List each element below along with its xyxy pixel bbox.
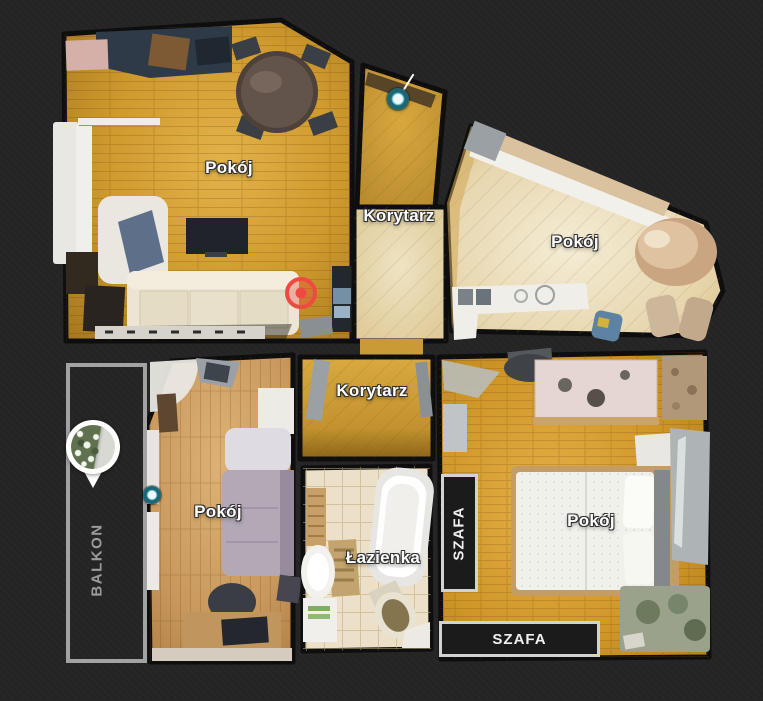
plant — [668, 594, 688, 614]
wardrobe-left-door — [76, 126, 92, 260]
tv-stand — [205, 252, 227, 257]
shelf-bottom — [152, 648, 292, 661]
bathroom — [301, 465, 436, 651]
sink-basin — [307, 553, 329, 591]
wall-ledge — [78, 118, 160, 125]
wardrobe-left — [53, 122, 79, 264]
plant — [636, 600, 660, 624]
round-table-top — [638, 221, 698, 269]
corridor-lower — [300, 357, 433, 459]
balcony-window — [146, 512, 159, 590]
plant — [684, 619, 706, 641]
balcony-outline — [66, 363, 147, 663]
pink-cushion — [65, 39, 108, 70]
sofa-cushion — [240, 291, 288, 328]
washer-detail — [308, 614, 330, 619]
sofa-cushion — [140, 291, 188, 328]
dining-table-top — [241, 56, 313, 128]
headboard — [654, 470, 670, 592]
chair-top — [148, 34, 190, 71]
pin-photo-greenery — [71, 425, 115, 469]
pillow — [623, 475, 656, 528]
table-highlight — [250, 71, 282, 93]
artwork-mark — [620, 370, 630, 380]
sink-basin — [476, 289, 491, 305]
round-table-highlight — [644, 230, 670, 248]
washer-detail — [308, 606, 330, 611]
tapestry — [662, 356, 707, 420]
tapestry-dot — [671, 368, 679, 376]
artwork-mark — [587, 389, 605, 407]
item-dark — [276, 575, 301, 604]
small-room — [146, 355, 302, 662]
kitchen-room — [447, 121, 723, 343]
radiator-bedroom — [443, 404, 467, 452]
clutter-dark — [195, 36, 232, 65]
shelf-item-blue — [333, 288, 351, 304]
wardrobe-box-bottom: SZAFA — [439, 621, 600, 657]
cabinet-wood — [157, 393, 179, 432]
frame-strip — [533, 417, 659, 425]
balcony-photo-pin[interactable] — [64, 418, 122, 504]
artwork-mark — [558, 378, 572, 392]
shelf-white — [258, 388, 294, 434]
shelf-item-lightblue — [334, 306, 350, 318]
wardrobe-label-side: SZAFA — [451, 506, 468, 560]
wardrobe-label-bottom: SZAFA — [492, 631, 546, 648]
washer — [303, 598, 337, 642]
wardrobe-box-side: SZAFA — [441, 474, 478, 592]
cabinet-dark-2 — [83, 285, 125, 333]
floorplan-viewer: BALKON SZAFA SZAFA Pokój Korytarz Pokój … — [0, 0, 763, 701]
sink-basin — [458, 289, 473, 305]
tapestry-dot — [687, 385, 697, 395]
corridor-junction-texture — [354, 207, 446, 341]
daybed-side — [280, 470, 294, 576]
monitor — [221, 616, 269, 645]
tv — [186, 218, 248, 254]
panorama-sweep-marker-corridor[interactable] — [387, 88, 409, 110]
tag-marker-living-room[interactable] — [285, 277, 317, 309]
balcony-label: BALKON — [89, 523, 106, 596]
sofa-back — [127, 271, 299, 289]
pillow — [623, 531, 656, 584]
sofa-cushion — [190, 291, 238, 328]
pillow — [225, 428, 291, 472]
panorama-sweep-marker-small-room[interactable] — [143, 486, 161, 504]
bedroom — [439, 348, 710, 660]
tapestry-dot — [672, 402, 680, 410]
